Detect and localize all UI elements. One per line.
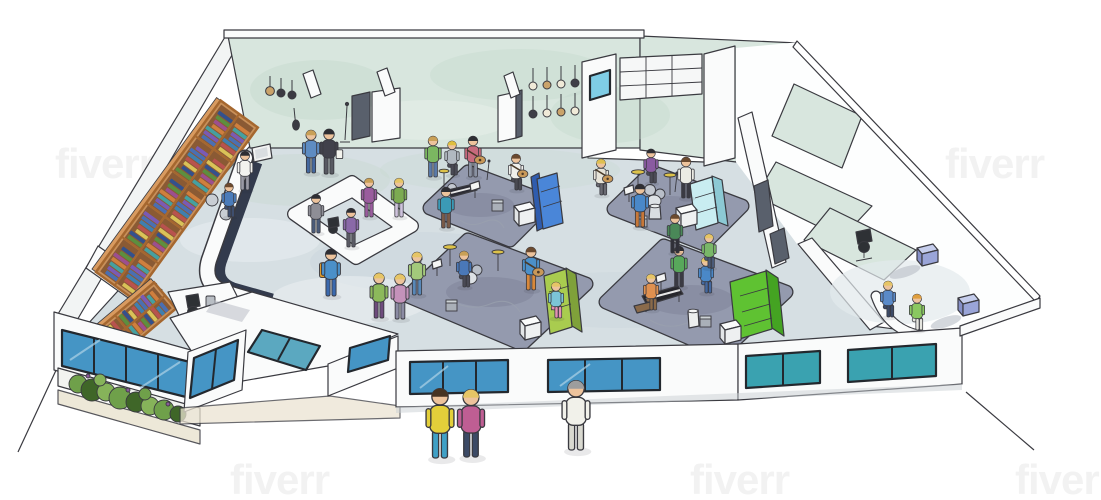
watermark-text: fiverr [945,140,1045,187]
doorway-open [352,92,370,140]
storage-shelf-unit [620,54,702,100]
amp [446,300,457,311]
booth-window [590,70,610,100]
percussion-bin [649,204,661,219]
cube-stool-blue [958,294,979,316]
isometric-music-studio-illustration: fiverr fiverr fiverr fiverr fiverr fiver… [0,0,1101,500]
front-window [548,358,660,392]
watermark-text: fiverr [230,456,330,500]
door-panel [498,92,516,142]
tall-drum [688,309,699,328]
cube-table [514,202,535,226]
cube-stool-blue [917,244,938,266]
amp [700,316,711,327]
doorway-open [516,90,522,138]
cube-table [720,320,741,344]
watermark-text: fiverr [1015,456,1101,500]
office-chair [328,217,339,234]
wall-top-edge [224,30,644,38]
stool [206,194,218,206]
amp [492,200,503,211]
front-window [410,360,508,394]
booth-wall [704,46,735,166]
watermark-text: fiverr [690,456,790,500]
cube-table [520,316,541,340]
illustration-canvas: fiverr fiverr fiverr fiverr fiverr fiver… [0,0,1101,500]
sofa-blue [531,173,563,231]
